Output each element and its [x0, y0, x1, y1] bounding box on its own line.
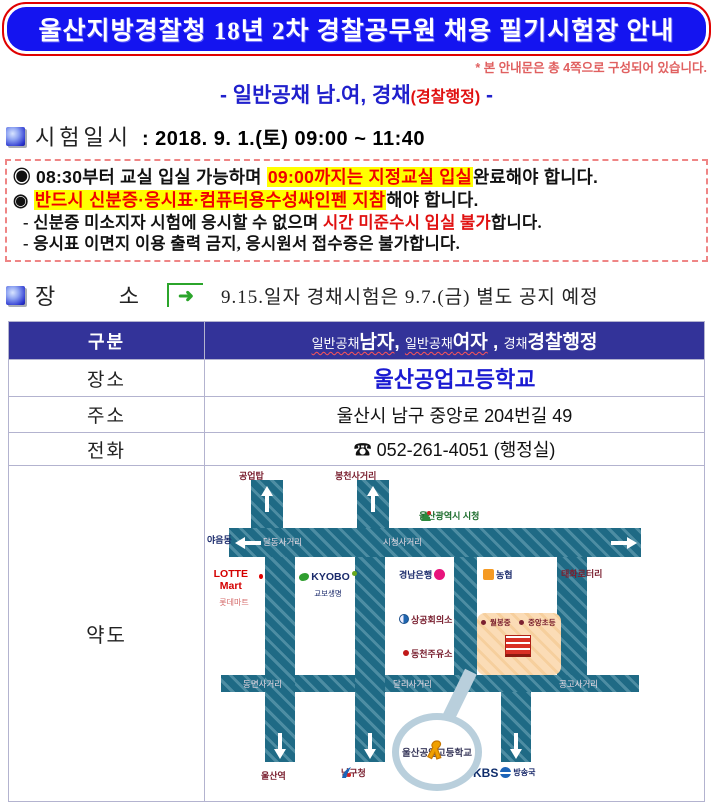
map-label-gongeoptap: 공업탑 — [239, 469, 264, 482]
location-notice: 9.15.일자 경채시험은 9.7.(금) 별도 공지 예정 — [213, 282, 599, 309]
exam-time-value: : 2018. 9. 1.(토) 09:00 ~ 11:40 — [142, 122, 425, 151]
green-arrow-icon: ➜ — [167, 283, 203, 307]
school1-label: 월봉중 — [490, 617, 511, 628]
dest-ulsan-station: 울산역 — [261, 769, 286, 782]
school1-pin: 월봉중 — [481, 617, 511, 628]
road-south-2 — [355, 557, 385, 762]
namgu-logo-icon — [341, 766, 352, 779]
map-label-left-exit: 야음동 — [207, 533, 232, 546]
left-arrow-icon — [235, 536, 261, 550]
phone-icon: ☎ — [354, 440, 372, 460]
right-arrow-icon — [611, 536, 637, 550]
gubun-sep-2: , — [488, 332, 504, 353]
address-value: 울산시 남구 중앙로 204번길 49 — [205, 397, 705, 433]
page-count-note: * 본 안내문은 총 4쪽으로 구성되어 있습니다. — [0, 57, 713, 76]
table-row-address: 주소 울산시 남구 중앙로 204번길 49 — [9, 397, 705, 433]
gubun-group-1: 일반공채남자 — [312, 335, 395, 352]
notice-line-2: ◉ 반드시 신분증·응시표·컴퓨터용수성싸인펜 지참해야 합니다. — [13, 189, 700, 212]
knbank-flower-icon — [434, 569, 445, 580]
gas-dot-icon — [403, 650, 409, 656]
down-arrow-icon — [273, 733, 287, 759]
road-south-1 — [265, 557, 295, 762]
location-section: 장 소 ➜ 9.15.일자 경채시험은 9.7.(금) 별도 공지 예정 — [0, 279, 713, 311]
dest-kbs: KBS 방송국 — [473, 766, 535, 780]
address-label: 주소 — [9, 397, 205, 433]
dest-namgu-office: 남구청 — [341, 766, 366, 779]
notice-line-4: - 응시표 이면지 이용 출력 금지, 응시원서 접수증은 불가합니다. — [13, 233, 700, 254]
notice-2-post: 해야 합니다. — [386, 190, 478, 210]
nonghyup-poi: 농협 — [483, 568, 513, 581]
knbank-label: 경남은행 — [399, 568, 432, 581]
up-arrow-icon — [260, 486, 274, 512]
kyobo-poi: KYOBO 교보생명 — [297, 571, 359, 601]
subtitle-dash: - — [480, 84, 493, 107]
chamber-label: 상공회의소 — [411, 613, 452, 626]
notice-line-3: - 신분증 미소지자 시험에 응시할 수 없으며 시간 미준수시 입실 불가합니… — [13, 212, 700, 233]
lotte-mart-sub: 롯데마트 — [219, 598, 248, 607]
notice-2-pre: ◉ — [13, 190, 34, 210]
location-map: 공업탑 봉천사거리 야음동 달동사거리 시청사거리 태화로터리 동면사거리 달리… — [205, 467, 704, 801]
kbs-sub-label: 방송국 — [513, 767, 535, 778]
notice-3-pre: - 신분증 미소지자 시험에 응시할 수 없으며 — [23, 213, 323, 232]
blue-square-bullet-icon — [6, 286, 25, 305]
chamber-poi: 상공회의소 — [399, 613, 452, 626]
notice-line-1: ◉ 08:30부터 교실 입실 가능하며 09:00까지는 지정교실 입실완료해… — [13, 166, 700, 189]
lotte-mart-label: LOTTE Mart — [205, 568, 257, 592]
subtitle-text: - 일반공채 남.여, 경채 — [220, 84, 411, 107]
school2-pin: 중앙초등 — [519, 617, 556, 628]
place-label: 장소 — [9, 360, 205, 397]
arrow-glyph: ➜ — [178, 287, 194, 306]
cityhall-icon — [419, 509, 433, 522]
notice-1-highlight: 09:00까지는 지정교실 입실 — [267, 167, 473, 187]
table-row-place: 장소 울산공업고등학교 — [9, 360, 705, 397]
kyobo-leaf-icon — [299, 573, 309, 581]
blue-square-bullet-icon — [6, 127, 25, 146]
notice-2-highlight: 반드시 신분증·응시표·컴퓨터용수성싸인펜 지참 — [34, 190, 387, 210]
kyobo-label: KYOBO — [311, 571, 350, 583]
map-label: 약도 — [9, 466, 205, 802]
gubun-value: 일반공채남자, 일반공채여자 , 경채경찰행정 — [205, 322, 705, 360]
phone-label: 전화 — [9, 433, 205, 466]
place-value: 울산공업고등학교 — [205, 360, 705, 397]
school-name: 울산공업고등학교 — [374, 367, 536, 392]
gubun-sep-1: , — [394, 332, 405, 353]
map-label-bcross3: 공고사거리 — [559, 678, 598, 690]
dot-icon — [519, 620, 524, 625]
subtitle: - 일반공채 남.여, 경채(경찰행정) - — [0, 79, 713, 109]
down-arrow-icon — [509, 733, 523, 759]
exam-time-heading: 시험일시 — [35, 120, 132, 152]
notice-3-red: 시간 미준수시 입실 불가 — [323, 213, 491, 232]
table-row-phone: 전화 ☎ 052-261-4051 (행정실) — [9, 433, 705, 466]
notice-1-pre: ◉ 08:30부터 교실 입실 가능하며 — [13, 167, 267, 187]
map-label-cross1: 달동사거리 — [263, 536, 302, 548]
map-label-top-cross: 봉천사거리 — [335, 469, 376, 482]
nonghyup-label: 농협 — [496, 568, 513, 581]
school-emblem-icon — [424, 739, 450, 765]
title-pill: 울산지방경찰청 18년 2차 경찰공무원 채용 필기시험장 안내 — [7, 7, 706, 51]
notice-3-post: 합니다. — [491, 213, 542, 232]
table-row-map: 약도 공업탑 — [9, 466, 705, 802]
title-banner: 울산지방경찰청 18년 2차 경찰공무원 채용 필기시험장 안내 — [2, 2, 711, 56]
down-arrow-icon — [363, 733, 377, 759]
green-dot-icon — [352, 571, 357, 576]
road-mid — [454, 557, 477, 675]
cityhall-pin: 울산광역시 시청 — [419, 509, 479, 522]
map-cell: 공업탑 봉천사거리 야음동 달동사거리 시청사거리 태화로터리 동면사거리 달리… — [205, 466, 705, 802]
knbank-poi: 경남은행 — [399, 568, 445, 581]
gubun-header: 구분 — [9, 322, 205, 360]
gas-station-poi: 동천주유소 — [403, 647, 452, 660]
notice-box: ◉ 08:30부터 교실 입실 가능하며 09:00까지는 지정교실 입실완료해… — [5, 159, 708, 262]
exam-site-table: 구분 일반공채남자, 일반공채여자 , 경채경찰행정 장소 울산공업고등학교 주… — [8, 321, 705, 802]
kyobo-sub: 교보생명 — [314, 589, 342, 598]
lotte-mart-poi: LOTTE Mart 롯데마트 — [205, 568, 263, 610]
dot-icon — [481, 620, 486, 625]
notice-1-post: 완료해야 합니다. — [473, 167, 598, 187]
phone-value: ☎ 052-261-4051 (행정실) — [205, 433, 705, 466]
up-arrow-icon — [366, 486, 380, 512]
map-label-cross2: 시청사거리 — [383, 536, 422, 548]
location-heading: 장 소 — [35, 279, 139, 311]
kbs-globe-icon — [500, 767, 511, 778]
nonghyup-icon — [483, 569, 494, 580]
gas-station-label: 동천주유소 — [411, 647, 452, 660]
red-dot-icon — [259, 574, 263, 579]
school2-label: 중앙초등 — [528, 617, 556, 628]
gubun-group-2: 일반공채여자 — [405, 335, 488, 352]
page-title: 울산지방경찰청 18년 2차 경찰공무원 채용 필기시험장 안내 — [38, 18, 674, 45]
table-row-gubun: 구분 일반공채남자, 일반공채여자 , 경채경찰행정 — [9, 322, 705, 360]
map-label-right-exit: 태화로터리 — [561, 567, 602, 580]
phone-number: 052-261-4051 (행정실) — [377, 440, 556, 460]
gubun-group-3: 경채경찰행정 — [504, 335, 598, 352]
subtitle-paren: (경찰행정) — [411, 89, 481, 106]
map-label-bcross1: 동면사거리 — [243, 678, 282, 690]
map-label-bcross2: 달리사거리 — [393, 678, 432, 690]
target-callout: 울산공업고등학교 — [392, 713, 482, 791]
exam-time-section: 시험일시 : 2018. 9. 1.(토) 09:00 ~ 11:40 — [0, 120, 713, 152]
chamber-icon — [399, 614, 409, 624]
school-building-icon — [505, 635, 531, 657]
